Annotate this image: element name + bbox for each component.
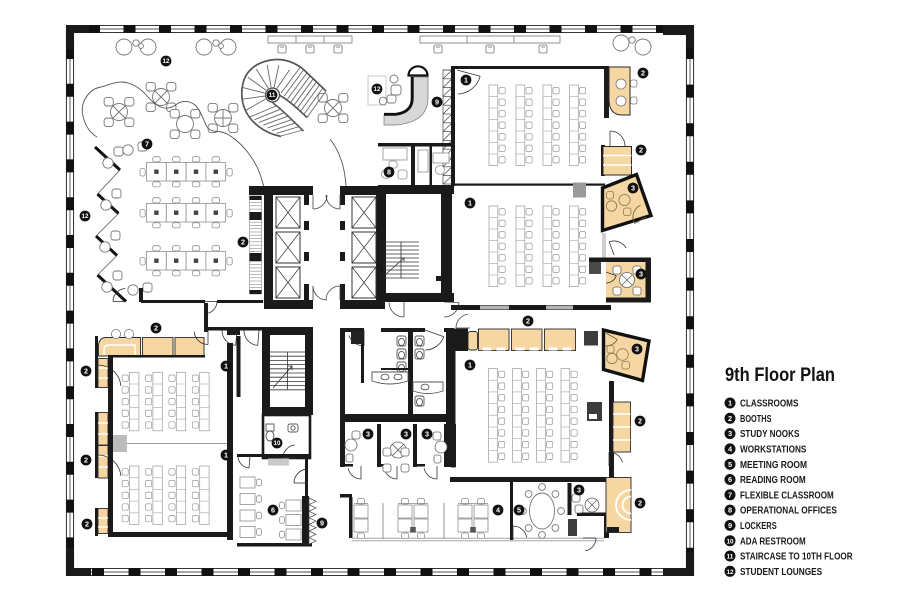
svg-text:4: 4 — [496, 506, 500, 515]
svg-text:7: 7 — [145, 140, 149, 149]
svg-text:7: 7 — [728, 490, 732, 499]
svg-text:3: 3 — [366, 430, 370, 439]
svg-text:12: 12 — [163, 58, 170, 65]
svg-text:CLASSROOMS: CLASSROOMS — [740, 398, 798, 410]
svg-text:12: 12 — [82, 213, 89, 220]
svg-text:2: 2 — [84, 456, 88, 465]
svg-text:9: 9 — [320, 519, 324, 528]
svg-text:2: 2 — [241, 238, 245, 247]
svg-text:STUDY NOOKS: STUDY NOOKS — [740, 428, 799, 440]
svg-text:1: 1 — [468, 199, 472, 208]
svg-text:5: 5 — [517, 506, 521, 515]
svg-text:11: 11 — [269, 92, 276, 99]
svg-text:12: 12 — [726, 569, 734, 576]
svg-text:9: 9 — [435, 98, 439, 107]
svg-text:9th Floor Plan: 9th Floor Plan — [725, 365, 835, 386]
svg-text:3: 3 — [639, 270, 643, 279]
svg-text:2: 2 — [154, 324, 158, 333]
svg-text:1: 1 — [468, 361, 472, 370]
svg-text:6: 6 — [271, 506, 275, 515]
svg-text:11: 11 — [727, 554, 734, 561]
svg-text:1: 1 — [224, 451, 228, 460]
svg-text:3: 3 — [728, 429, 732, 438]
svg-text:1: 1 — [464, 76, 468, 85]
svg-text:2: 2 — [638, 417, 642, 426]
svg-text:2: 2 — [638, 499, 642, 508]
svg-text:OPERATIONAL OFFICES: OPERATIONAL OFFICES — [740, 505, 837, 517]
svg-text:2: 2 — [728, 414, 732, 423]
svg-text:LOCKERS: LOCKERS — [740, 520, 777, 532]
svg-text:READING ROOM: READING ROOM — [740, 474, 806, 486]
svg-text:MEETING ROOM: MEETING ROOM — [740, 459, 807, 471]
svg-text:2: 2 — [84, 367, 88, 376]
svg-text:1: 1 — [224, 362, 228, 371]
svg-text:STUDENT LOUNGES: STUDENT LOUNGES — [740, 566, 822, 578]
svg-text:FLEXIBLE CLASSROOM: FLEXIBLE CLASSROOM — [740, 489, 834, 501]
svg-text:6: 6 — [728, 475, 732, 484]
svg-text:2: 2 — [641, 69, 645, 78]
svg-text:3: 3 — [404, 430, 408, 439]
svg-text:5: 5 — [728, 460, 732, 469]
svg-text:3: 3 — [635, 345, 639, 354]
svg-text:STAIRCASE TO 10TH FLOOR: STAIRCASE TO 10TH FLOOR — [740, 551, 853, 563]
svg-text:3: 3 — [631, 184, 635, 193]
svg-text:2: 2 — [526, 317, 530, 326]
svg-text:3: 3 — [577, 486, 581, 495]
svg-text:BOOTHS: BOOTHS — [740, 413, 772, 425]
svg-text:2: 2 — [639, 146, 643, 155]
svg-text:ADA RESTROOM: ADA RESTROOM — [740, 535, 806, 547]
svg-text:8: 8 — [728, 506, 732, 515]
svg-text:12: 12 — [374, 86, 381, 93]
svg-text:9: 9 — [728, 521, 732, 530]
svg-text:10: 10 — [726, 538, 734, 545]
svg-text:2: 2 — [85, 520, 89, 529]
svg-text:10: 10 — [274, 440, 281, 447]
svg-text:WORKSTATIONS: WORKSTATIONS — [740, 444, 806, 456]
svg-text:8: 8 — [387, 168, 391, 177]
svg-text:3: 3 — [425, 430, 429, 439]
svg-text:1: 1 — [728, 399, 732, 408]
